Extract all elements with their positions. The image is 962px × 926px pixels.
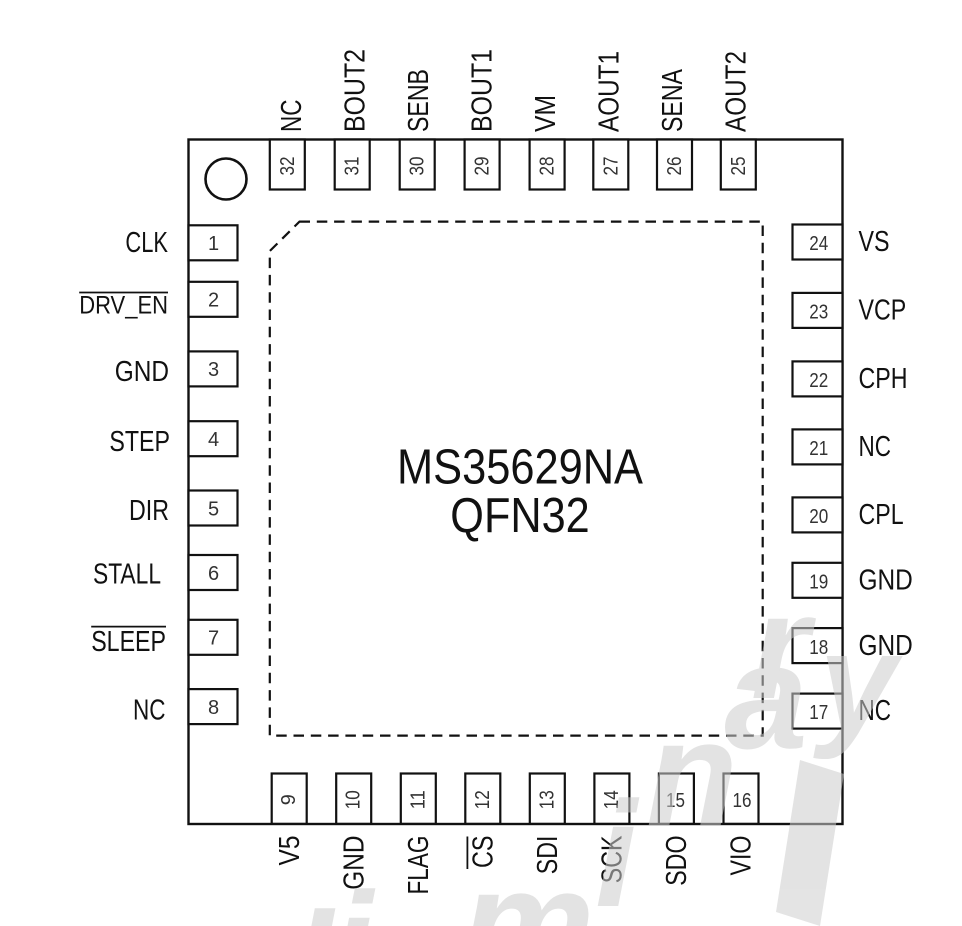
svg-text:25: 25 — [728, 157, 750, 176]
svg-text:i: i — [331, 861, 376, 926]
svg-text:AOUT1: AOUT1 — [594, 51, 626, 132]
svg-text:2: 2 — [208, 290, 219, 312]
svg-text:CLK: CLK — [125, 227, 168, 259]
svg-text:NC: NC — [276, 100, 308, 133]
svg-text:GND: GND — [859, 564, 913, 596]
svg-text:30: 30 — [407, 157, 429, 176]
svg-text:22: 22 — [809, 370, 828, 392]
svg-text:12: 12 — [472, 790, 494, 809]
svg-text:19: 19 — [809, 571, 828, 593]
svg-text:STALL: STALL — [93, 559, 161, 591]
svg-text:SENA: SENA — [657, 68, 689, 132]
svg-text:i: i — [595, 770, 640, 926]
svg-text:6: 6 — [208, 563, 219, 585]
svg-text:r: r — [751, 562, 817, 730]
svg-text:y: y — [813, 603, 903, 760]
svg-text:28: 28 — [537, 157, 559, 176]
svg-text:l: l — [291, 881, 336, 926]
svg-text:13: 13 — [536, 790, 558, 809]
svg-text:24: 24 — [809, 233, 828, 255]
svg-text:DIR: DIR — [129, 495, 169, 527]
svg-text:QFN32: QFN32 — [450, 488, 589, 543]
svg-text:10: 10 — [343, 790, 365, 809]
svg-text:NC: NC — [133, 694, 166, 726]
svg-text:29: 29 — [472, 157, 494, 176]
svg-text:SENB: SENB — [403, 69, 435, 132]
svg-text:31: 31 — [342, 157, 364, 176]
svg-text:FLAG: FLAG — [403, 836, 435, 895]
svg-text:DRV_EN: DRV_EN — [79, 291, 168, 319]
svg-text:m: m — [461, 838, 594, 926]
svg-text:8: 8 — [208, 697, 219, 719]
svg-text:11: 11 — [407, 790, 429, 809]
svg-text:5: 5 — [208, 498, 219, 520]
svg-text:BOUT1: BOUT1 — [467, 49, 499, 132]
svg-text:VM: VM — [530, 95, 562, 132]
svg-text:4: 4 — [208, 429, 219, 451]
svg-text:GND: GND — [115, 356, 169, 388]
svg-text:26: 26 — [664, 157, 686, 176]
svg-text:V5: V5 — [274, 836, 306, 866]
svg-text:MS35629NA: MS35629NA — [397, 440, 643, 495]
svg-text:SLEEP: SLEEP — [91, 626, 166, 658]
svg-text:27: 27 — [600, 157, 622, 176]
svg-text:9: 9 — [278, 794, 300, 805]
svg-text:CPH: CPH — [859, 363, 908, 395]
svg-text:3: 3 — [208, 359, 219, 381]
svg-text:1: 1 — [208, 233, 219, 255]
svg-text:AOUT2: AOUT2 — [721, 51, 753, 132]
svg-text:BOUT2: BOUT2 — [340, 49, 372, 132]
svg-text:23: 23 — [809, 302, 828, 324]
svg-text:VS: VS — [859, 226, 890, 258]
svg-text:STEP: STEP — [109, 426, 170, 458]
svg-text:20: 20 — [809, 506, 828, 528]
svg-text:32: 32 — [277, 157, 299, 176]
svg-text:7: 7 — [208, 628, 219, 650]
svg-text:VCP: VCP — [859, 295, 907, 327]
svg-text:NC: NC — [859, 431, 892, 463]
svg-text:CPL: CPL — [859, 499, 904, 531]
svg-text:21: 21 — [809, 438, 828, 460]
